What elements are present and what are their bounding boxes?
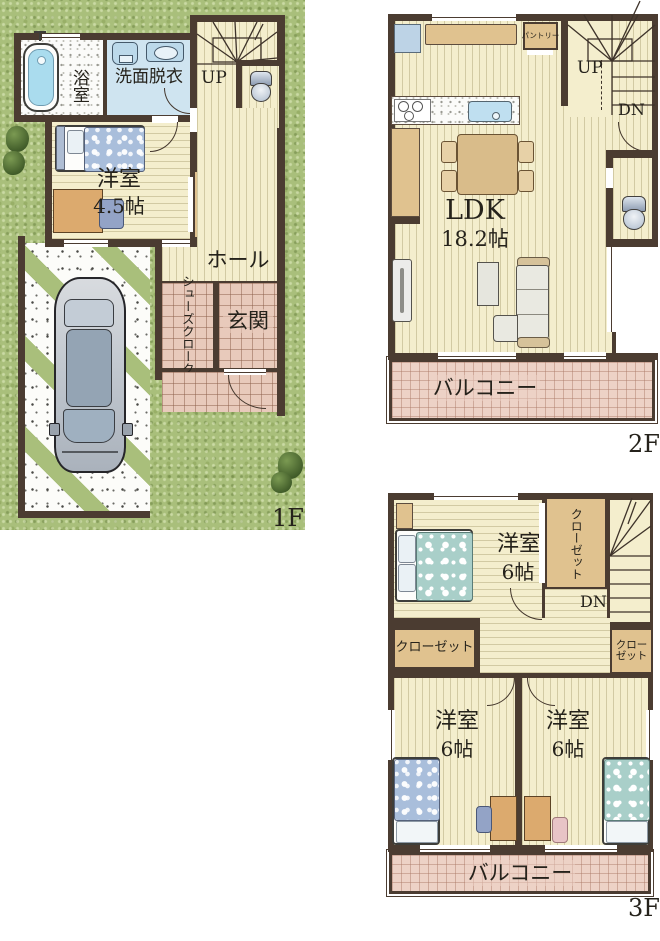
floor-plan-2f: パントリー UP DN bbox=[330, 0, 660, 470]
floor-label-2f: 2F bbox=[628, 432, 660, 457]
window bbox=[64, 240, 108, 247]
balcony-label: バルコニー bbox=[465, 860, 575, 886]
ldk-size-label: 18.2帖 bbox=[437, 227, 513, 251]
sink-basin bbox=[154, 46, 178, 60]
pillow bbox=[398, 535, 416, 563]
desk bbox=[490, 796, 517, 841]
dining-table bbox=[457, 134, 518, 195]
tv-screen bbox=[400, 268, 404, 313]
toilet-icon bbox=[623, 209, 645, 230]
sink-drain bbox=[492, 112, 500, 120]
ldk-label: LDK bbox=[440, 196, 510, 226]
blanket bbox=[394, 759, 440, 821]
car-mirror bbox=[122, 423, 133, 436]
window bbox=[42, 34, 80, 40]
bedroom-main-size-label: 6帖 bbox=[492, 561, 544, 583]
car-roof bbox=[66, 329, 112, 407]
shelf bbox=[396, 503, 413, 529]
bedroom-size-label: 4.5帖 bbox=[86, 195, 152, 217]
dining-chair bbox=[441, 170, 457, 192]
window bbox=[646, 710, 653, 760]
bedroom-left-size-label: 6帖 bbox=[435, 738, 479, 760]
kitchen-side-cabinet bbox=[391, 128, 420, 217]
living-table bbox=[477, 262, 499, 306]
pantry-opening bbox=[527, 50, 553, 55]
desk bbox=[524, 796, 551, 841]
stairs-down-label: DN bbox=[618, 102, 645, 119]
window bbox=[388, 710, 395, 760]
car-windshield bbox=[63, 409, 115, 443]
bathroom-label: 浴室 bbox=[67, 56, 89, 116]
hall-label: ホール bbox=[208, 248, 268, 272]
sofa-seam bbox=[517, 314, 548, 315]
dining-chair bbox=[441, 141, 457, 163]
window bbox=[607, 247, 616, 332]
car bbox=[54, 277, 126, 473]
blanket bbox=[604, 759, 650, 821]
shoe-closet-label: シューズクローク bbox=[167, 293, 207, 357]
bedroom-right-size-label: 6帖 bbox=[546, 738, 590, 760]
car-rear-glass bbox=[64, 299, 114, 327]
floor-plan-1f: 浴室 洗面脱衣 UP bbox=[0, 0, 330, 545]
closet-door-gap bbox=[539, 503, 545, 583]
stairs-up-label: UP bbox=[201, 70, 227, 88]
window bbox=[432, 14, 516, 21]
blanket bbox=[84, 127, 145, 172]
outside-area bbox=[616, 245, 660, 353]
toilet-door-gap bbox=[606, 168, 613, 188]
bedroom-label: 洋室 bbox=[88, 168, 150, 192]
stove-burner bbox=[412, 101, 423, 112]
washing-machine-door bbox=[119, 55, 133, 63]
bed-sheet bbox=[606, 821, 648, 843]
pantry: パントリー bbox=[523, 22, 558, 50]
kitchen-cabinet bbox=[425, 24, 517, 45]
refrigerator bbox=[394, 24, 421, 53]
floor-plan-sheet: 浴室 洗面脱衣 UP bbox=[0, 0, 660, 941]
wall bbox=[388, 217, 420, 224]
pillow bbox=[67, 130, 84, 154]
bed-sheet bbox=[396, 821, 438, 843]
dining-chair bbox=[518, 141, 534, 163]
closet-door-gap bbox=[188, 177, 193, 232]
balcony-label: バルコニー bbox=[430, 375, 540, 401]
stair-divider bbox=[601, 60, 602, 110]
stairs-up-label: UP bbox=[577, 60, 603, 78]
window bbox=[434, 493, 518, 500]
washroom-door-gap bbox=[190, 108, 197, 132]
wall bbox=[277, 372, 285, 416]
sofa bbox=[516, 265, 549, 339]
bed-headboard bbox=[56, 126, 65, 170]
stove-burner bbox=[404, 111, 414, 121]
wall bbox=[561, 14, 568, 106]
bathtub-drain bbox=[37, 56, 46, 65]
car-hood-line bbox=[62, 451, 118, 453]
wall bbox=[606, 150, 613, 246]
site-wall bbox=[18, 511, 150, 518]
blanket bbox=[416, 532, 473, 601]
floor-plan-3f: 洋室 6帖 クローゼット DN クローゼット クローゼット bbox=[330, 470, 660, 941]
site-wall bbox=[18, 236, 25, 518]
car-mirror bbox=[49, 423, 60, 436]
wall bbox=[606, 150, 658, 158]
stairs-down-icon bbox=[608, 496, 653, 624]
floor-label-1f: 1F bbox=[272, 506, 304, 531]
bedroom-left-label: 洋室 bbox=[431, 710, 483, 734]
sofa-seam bbox=[517, 289, 548, 290]
closet-main-label: クローゼット bbox=[561, 502, 591, 585]
faucet-icon bbox=[34, 31, 46, 33]
toilet-icon bbox=[251, 83, 271, 102]
sofa-armrest bbox=[517, 337, 550, 348]
bedroom-right-label: 洋室 bbox=[542, 710, 594, 734]
closet-left-label: クローゼット bbox=[396, 636, 473, 660]
hall-floor bbox=[480, 618, 610, 673]
window bbox=[162, 240, 190, 247]
wall bbox=[606, 239, 658, 247]
dining-chair bbox=[518, 170, 534, 192]
kitchen-sink bbox=[468, 101, 512, 122]
entrance-label: 玄関 bbox=[223, 309, 273, 333]
floor-label-3f: 3F bbox=[628, 896, 660, 921]
pillow bbox=[398, 564, 416, 592]
chair bbox=[552, 817, 568, 843]
closet-right-label: クローゼット bbox=[613, 632, 650, 670]
sofa-chaise bbox=[493, 315, 518, 342]
washroom-label: 洗面脱衣 bbox=[107, 67, 191, 89]
hall-floor bbox=[197, 108, 277, 247]
chair bbox=[476, 806, 492, 833]
stairs-down-label: DN bbox=[580, 594, 607, 611]
